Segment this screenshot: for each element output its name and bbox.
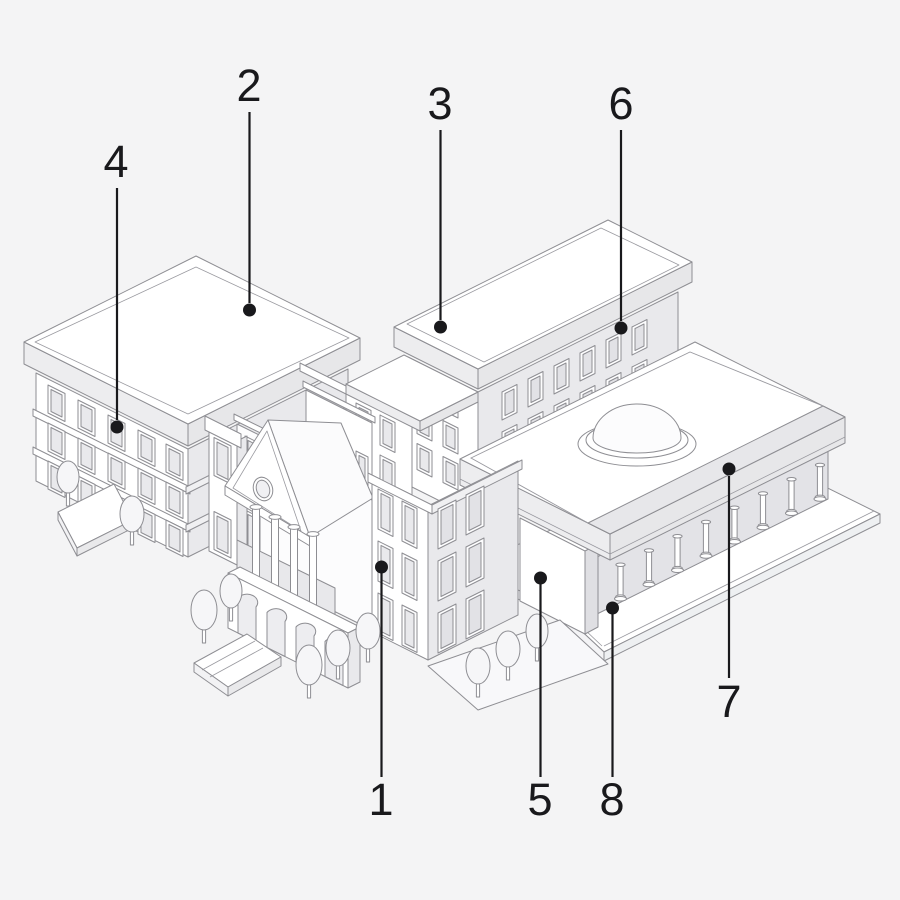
callout-3: 3: [427, 78, 452, 334]
column: [760, 493, 765, 527]
column: [703, 521, 708, 555]
column-plinth: [700, 554, 712, 559]
column: [732, 507, 737, 541]
column-capital: [644, 549, 653, 553]
column-capital: [616, 563, 625, 567]
window-glass: [81, 443, 92, 471]
window-glass: [469, 595, 481, 635]
column-plinth: [643, 582, 655, 587]
label-number: 5: [527, 774, 552, 825]
tree: [120, 496, 144, 532]
column: [789, 478, 794, 512]
column-capital: [250, 505, 262, 510]
window-glass: [635, 324, 644, 351]
tree: [296, 645, 322, 685]
column-capital: [269, 515, 281, 520]
campus-illustration: 1 2 3 4 5 6 7: [0, 0, 900, 900]
window-glass: [531, 376, 540, 403]
tree: [57, 461, 79, 493]
window-glass: [141, 435, 152, 463]
column-plinth: [672, 568, 684, 573]
label-number: 3: [427, 78, 452, 129]
label-number: 8: [599, 774, 624, 825]
column-capital: [758, 492, 767, 496]
column-plinth: [615, 596, 627, 601]
column-plinth: [757, 525, 769, 530]
column-capital: [815, 463, 824, 467]
tree: [496, 631, 520, 667]
column-capital: [787, 477, 796, 481]
anchor-dot: [375, 561, 388, 574]
label-number: 2: [236, 60, 261, 111]
column-capital: [288, 525, 300, 530]
window-glass: [469, 543, 481, 583]
window-glass: [169, 525, 180, 553]
label-number: 7: [716, 676, 741, 727]
tree: [326, 630, 350, 666]
column-capital: [673, 534, 682, 538]
label-number: 1: [368, 774, 393, 825]
column: [618, 564, 623, 598]
anchor-dot: [434, 321, 447, 334]
tree: [191, 590, 217, 630]
window-glass: [51, 390, 62, 418]
window-glass: [217, 442, 228, 480]
column: [646, 550, 651, 584]
window-glass: [405, 610, 414, 649]
tree: [466, 648, 490, 684]
tree: [526, 614, 548, 648]
column-plinth: [786, 511, 798, 516]
window-glass: [420, 448, 429, 473]
tree: [220, 574, 242, 608]
anchor-dot: [723, 463, 736, 476]
column-capital: [701, 520, 710, 524]
window-glass: [111, 458, 122, 486]
label-number: 4: [103, 136, 128, 187]
anchor-dot: [615, 322, 628, 335]
window-glass: [81, 405, 92, 433]
label-number: 6: [608, 78, 633, 129]
anchor-dot: [111, 421, 124, 434]
anchor-dot: [534, 572, 547, 585]
column: [675, 535, 680, 569]
window-glass: [405, 558, 414, 597]
window-glass: [583, 350, 592, 377]
anchor-dot: [606, 602, 619, 615]
window-glass: [51, 428, 62, 456]
window-glass: [609, 337, 618, 364]
window-glass: [217, 516, 228, 554]
window-glass: [505, 389, 514, 416]
column-capital: [730, 506, 739, 510]
column-plinth: [729, 539, 741, 544]
illustration-canvas: 1 2 3 4 5 6 7: [0, 0, 900, 900]
window-glass: [141, 473, 152, 501]
window-glass: [469, 491, 481, 531]
window-glass: [383, 420, 392, 449]
window-glass: [441, 505, 453, 545]
window-glass: [381, 494, 390, 533]
window-glass: [557, 363, 566, 390]
tree: [356, 613, 380, 649]
window-glass: [169, 487, 180, 515]
window-glass: [169, 449, 180, 477]
anchor-dot: [243, 304, 256, 317]
column-plinth: [814, 497, 826, 502]
window-glass: [441, 557, 453, 597]
window-glass: [446, 425, 455, 450]
window-glass: [405, 506, 414, 545]
window-glass: [446, 461, 455, 486]
column-capital: [307, 532, 319, 537]
column: [817, 464, 822, 498]
window-glass: [441, 609, 453, 649]
